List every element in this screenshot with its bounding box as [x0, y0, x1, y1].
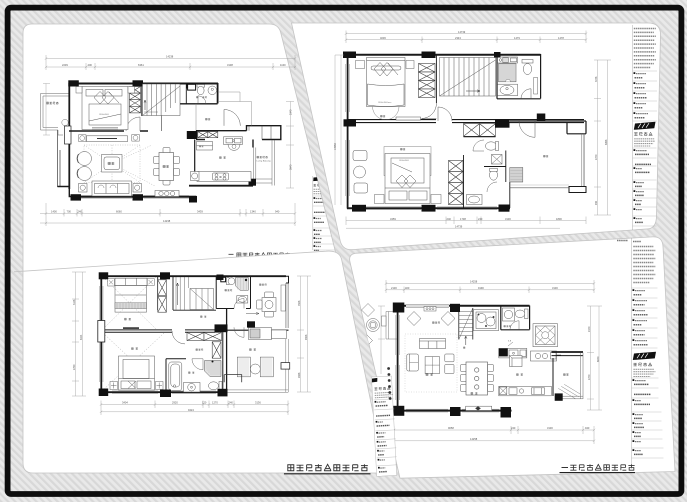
- svg-text:940: 940: [585, 426, 590, 430]
- svg-text:3459: 3459: [390, 217, 396, 221]
- svg-text:2608: 2608: [298, 372, 301, 378]
- svg-text:2130: 2130: [391, 286, 397, 290]
- svg-text:9028: 9028: [305, 334, 308, 340]
- svg-text:2740: 2740: [588, 374, 591, 380]
- svg-text:240: 240: [511, 426, 516, 430]
- svg-text:14238: 14238: [166, 55, 174, 59]
- svg-text:9424: 9424: [188, 408, 194, 412]
- svg-text:1100: 1100: [280, 63, 286, 67]
- svg-text:9058: 9058: [448, 426, 454, 430]
- svg-text:14258: 14258: [470, 437, 478, 441]
- svg-text:240: 240: [229, 401, 234, 405]
- svg-text:14258: 14258: [470, 280, 478, 284]
- svg-text:120: 120: [202, 401, 207, 405]
- svg-text:1800: 1800: [556, 217, 562, 221]
- svg-text:400: 400: [405, 286, 410, 290]
- svg-text:6060: 6060: [116, 210, 122, 214]
- svg-text:1270: 1270: [212, 401, 218, 405]
- svg-text:1800x2000: 1800x2000: [99, 114, 110, 116]
- svg-text:2740: 2740: [595, 154, 598, 160]
- svg-text:240: 240: [78, 210, 83, 214]
- svg-text:3130: 3130: [505, 217, 511, 221]
- svg-text:14739: 14739: [455, 224, 463, 228]
- svg-text:700: 700: [67, 210, 72, 214]
- svg-text:1400: 1400: [51, 210, 57, 214]
- svg-text:3138: 3138: [227, 63, 233, 67]
- svg-text:14739: 14739: [458, 30, 466, 34]
- svg-text:14550: 14550: [334, 143, 337, 150]
- svg-text:1800x2000: 1800x2000: [399, 160, 410, 162]
- svg-text:940: 940: [275, 210, 280, 214]
- svg-text:1478: 1478: [558, 36, 564, 40]
- svg-text:4036: 4036: [380, 36, 386, 40]
- svg-text:8670: 8670: [597, 356, 600, 362]
- svg-text:3130: 3130: [552, 286, 558, 290]
- svg-text:1738: 1738: [460, 217, 466, 221]
- svg-text:2920: 2920: [172, 401, 178, 405]
- svg-text:14238: 14238: [163, 219, 171, 223]
- svg-text:1340: 1340: [250, 210, 256, 214]
- svg-text:6424: 6424: [80, 334, 83, 340]
- svg-text:3130: 3130: [547, 426, 553, 430]
- svg-text:2239: 2239: [62, 63, 68, 67]
- svg-text:6098: 6098: [605, 139, 608, 145]
- svg-text:3128: 3128: [73, 299, 76, 305]
- svg-text:240: 240: [447, 217, 452, 221]
- svg-text:3404: 3404: [122, 401, 128, 405]
- svg-text:9190: 9190: [478, 286, 484, 290]
- svg-text:3478: 3478: [595, 76, 598, 82]
- svg-text:7628: 7628: [298, 300, 301, 306]
- svg-text:1800x1900mm: 1800x1900mm: [378, 102, 392, 104]
- svg-text:930: 930: [595, 200, 598, 205]
- svg-text:3136: 3136: [255, 401, 261, 405]
- svg-text:1479: 1479: [514, 36, 520, 40]
- svg-text:3439: 3439: [197, 210, 203, 214]
- svg-text:2440: 2440: [588, 326, 591, 332]
- svg-text:Living Balcony: Living Balcony: [257, 161, 272, 163]
- svg-text:3840: 3840: [290, 164, 293, 170]
- svg-text:400: 400: [88, 63, 93, 67]
- svg-text:2343: 2343: [455, 36, 461, 40]
- svg-text:2700: 2700: [73, 364, 76, 370]
- svg-text:6361: 6361: [138, 63, 144, 67]
- svg-text:240: 240: [478, 217, 483, 221]
- svg-text:2040: 2040: [290, 109, 293, 115]
